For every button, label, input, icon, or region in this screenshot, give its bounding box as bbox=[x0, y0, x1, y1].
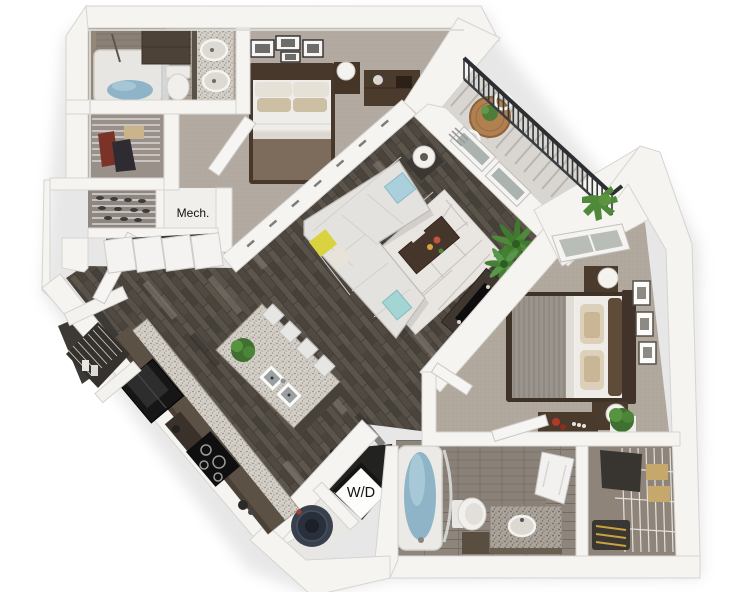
svg-text:Mech.: Mech. bbox=[177, 206, 210, 220]
svg-text:W/D: W/D bbox=[347, 485, 375, 501]
